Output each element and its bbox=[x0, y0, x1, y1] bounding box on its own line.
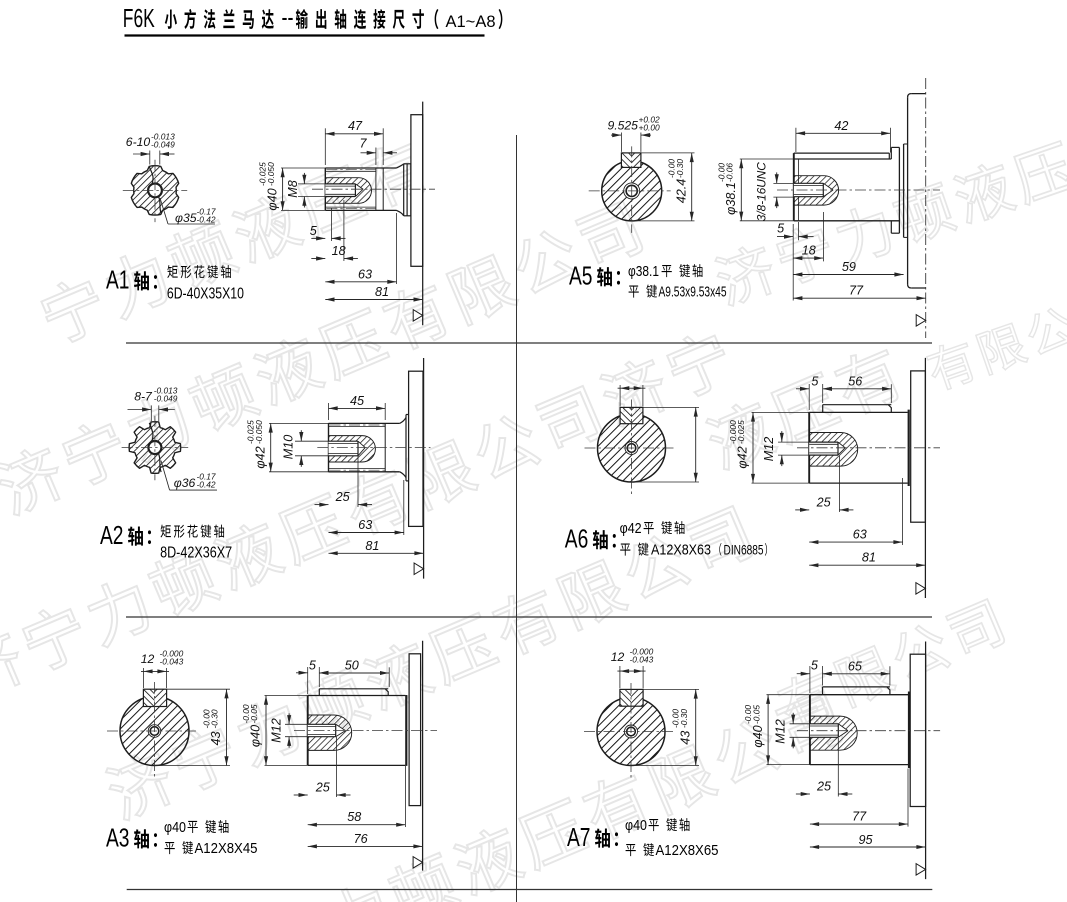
svg-text:58: 58 bbox=[347, 810, 361, 824]
svg-text:φ38.1: φ38.1 bbox=[724, 182, 738, 215]
svg-text:7: 7 bbox=[359, 137, 367, 151]
svg-text:φ42: φ42 bbox=[736, 446, 750, 468]
svg-text:18: 18 bbox=[332, 244, 346, 258]
svg-text:65: 65 bbox=[848, 660, 863, 674]
svg-text:-0.42: -0.42 bbox=[197, 214, 216, 224]
svg-text:47: 47 bbox=[348, 119, 363, 133]
svg-text:59: 59 bbox=[842, 260, 856, 274]
svg-text:8D-42X36X7: 8D-42X36X7 bbox=[160, 545, 232, 562]
svg-text:81: 81 bbox=[375, 285, 389, 299]
svg-text:95: 95 bbox=[858, 833, 873, 847]
svg-text:43: 43 bbox=[209, 731, 223, 745]
svg-text:A12X8X63: A12X8X63 bbox=[651, 542, 711, 559]
svg-text:-0.05: -0.05 bbox=[751, 705, 761, 724]
svg-text:-0.06: -0.06 bbox=[725, 163, 735, 182]
svg-text:φ42: φ42 bbox=[620, 520, 642, 537]
svg-text:5: 5 bbox=[309, 659, 317, 673]
svg-text:A12X8X65: A12X8X65 bbox=[656, 842, 719, 859]
svg-text:-0.050: -0.050 bbox=[254, 420, 264, 444]
svg-text:A5: A5 bbox=[569, 261, 593, 291]
svg-text:3/8-16UNC: 3/8-16UNC bbox=[755, 162, 769, 221]
svg-text:--: -- bbox=[282, 2, 294, 32]
svg-text:M12: M12 bbox=[269, 718, 283, 743]
svg-text:φ40: φ40 bbox=[625, 817, 647, 834]
svg-text:-0.043: -0.043 bbox=[160, 657, 184, 667]
svg-text:25: 25 bbox=[816, 779, 832, 793]
svg-text:-0.049: -0.049 bbox=[154, 394, 178, 404]
svg-text:A6: A6 bbox=[565, 524, 589, 554]
svg-text:A3: A3 bbox=[106, 823, 130, 853]
svg-text:56: 56 bbox=[848, 374, 862, 388]
svg-text:8-7: 8-7 bbox=[134, 390, 153, 404]
svg-text:DIN6885: DIN6885 bbox=[724, 542, 764, 558]
svg-text:6D-40X35X10: 6D-40X35X10 bbox=[167, 286, 244, 303]
svg-text:77: 77 bbox=[852, 810, 867, 824]
svg-text:+0.00: +0.00 bbox=[639, 123, 661, 133]
svg-text:φ35: φ35 bbox=[175, 211, 197, 225]
svg-text:5: 5 bbox=[310, 224, 318, 238]
svg-text:81: 81 bbox=[365, 539, 379, 553]
svg-text:25: 25 bbox=[335, 490, 351, 504]
svg-text:-0.30: -0.30 bbox=[675, 159, 685, 178]
svg-text:F6K: F6K bbox=[123, 3, 155, 33]
svg-text:A9.53x9.53x45: A9.53x9.53x45 bbox=[659, 284, 727, 301]
svg-text:45: 45 bbox=[350, 394, 365, 408]
svg-text:63: 63 bbox=[358, 268, 372, 282]
svg-text:φ42: φ42 bbox=[253, 446, 267, 468]
svg-text:12: 12 bbox=[141, 652, 155, 666]
svg-text:φ40: φ40 bbox=[249, 725, 263, 747]
svg-text:φ40: φ40 bbox=[265, 188, 279, 210]
svg-text:6-10: 6-10 bbox=[126, 135, 151, 149]
svg-text:A7: A7 bbox=[567, 822, 591, 852]
svg-text:M12: M12 bbox=[773, 719, 787, 744]
svg-text:76: 76 bbox=[354, 832, 368, 846]
svg-text:A1: A1 bbox=[106, 265, 130, 295]
svg-text:5: 5 bbox=[811, 374, 819, 388]
svg-text:81: 81 bbox=[862, 551, 876, 565]
svg-text:φ40: φ40 bbox=[164, 819, 186, 836]
svg-text:63: 63 bbox=[358, 518, 372, 532]
svg-text:63: 63 bbox=[853, 528, 867, 542]
svg-text:50: 50 bbox=[345, 659, 359, 673]
svg-text:-0.043: -0.043 bbox=[630, 655, 654, 665]
svg-text:5: 5 bbox=[811, 659, 819, 673]
svg-text:A12X8X45: A12X8X45 bbox=[195, 840, 258, 857]
svg-text:25: 25 bbox=[816, 495, 832, 509]
svg-text:φ38.1: φ38.1 bbox=[628, 263, 659, 280]
svg-text:-0.42: -0.42 bbox=[197, 479, 216, 489]
svg-text:42.4: 42.4 bbox=[674, 179, 688, 204]
svg-text:-0.30: -0.30 bbox=[679, 709, 689, 728]
svg-text:42: 42 bbox=[834, 119, 848, 133]
svg-text:φ40: φ40 bbox=[751, 725, 765, 747]
svg-text:M8: M8 bbox=[286, 180, 300, 198]
svg-text:-0.30: -0.30 bbox=[210, 709, 220, 728]
svg-text:M12: M12 bbox=[762, 437, 776, 462]
svg-text:43: 43 bbox=[678, 731, 692, 745]
svg-text:25: 25 bbox=[315, 781, 331, 795]
svg-text:φ36: φ36 bbox=[174, 476, 196, 490]
svg-text:5: 5 bbox=[777, 222, 785, 236]
svg-text:-0.049: -0.049 bbox=[151, 140, 175, 150]
svg-text:-0.050: -0.050 bbox=[266, 162, 276, 186]
svg-text:A1~A8: A1~A8 bbox=[446, 12, 496, 31]
svg-text:12: 12 bbox=[611, 650, 625, 664]
svg-text:M10: M10 bbox=[282, 435, 296, 460]
svg-text:-0.025: -0.025 bbox=[736, 420, 746, 444]
svg-text:9.525: 9.525 bbox=[607, 119, 638, 133]
svg-text:18: 18 bbox=[802, 244, 816, 258]
svg-text:77: 77 bbox=[849, 284, 864, 298]
svg-text:A2: A2 bbox=[100, 520, 124, 550]
svg-text:-0.05: -0.05 bbox=[249, 704, 259, 723]
